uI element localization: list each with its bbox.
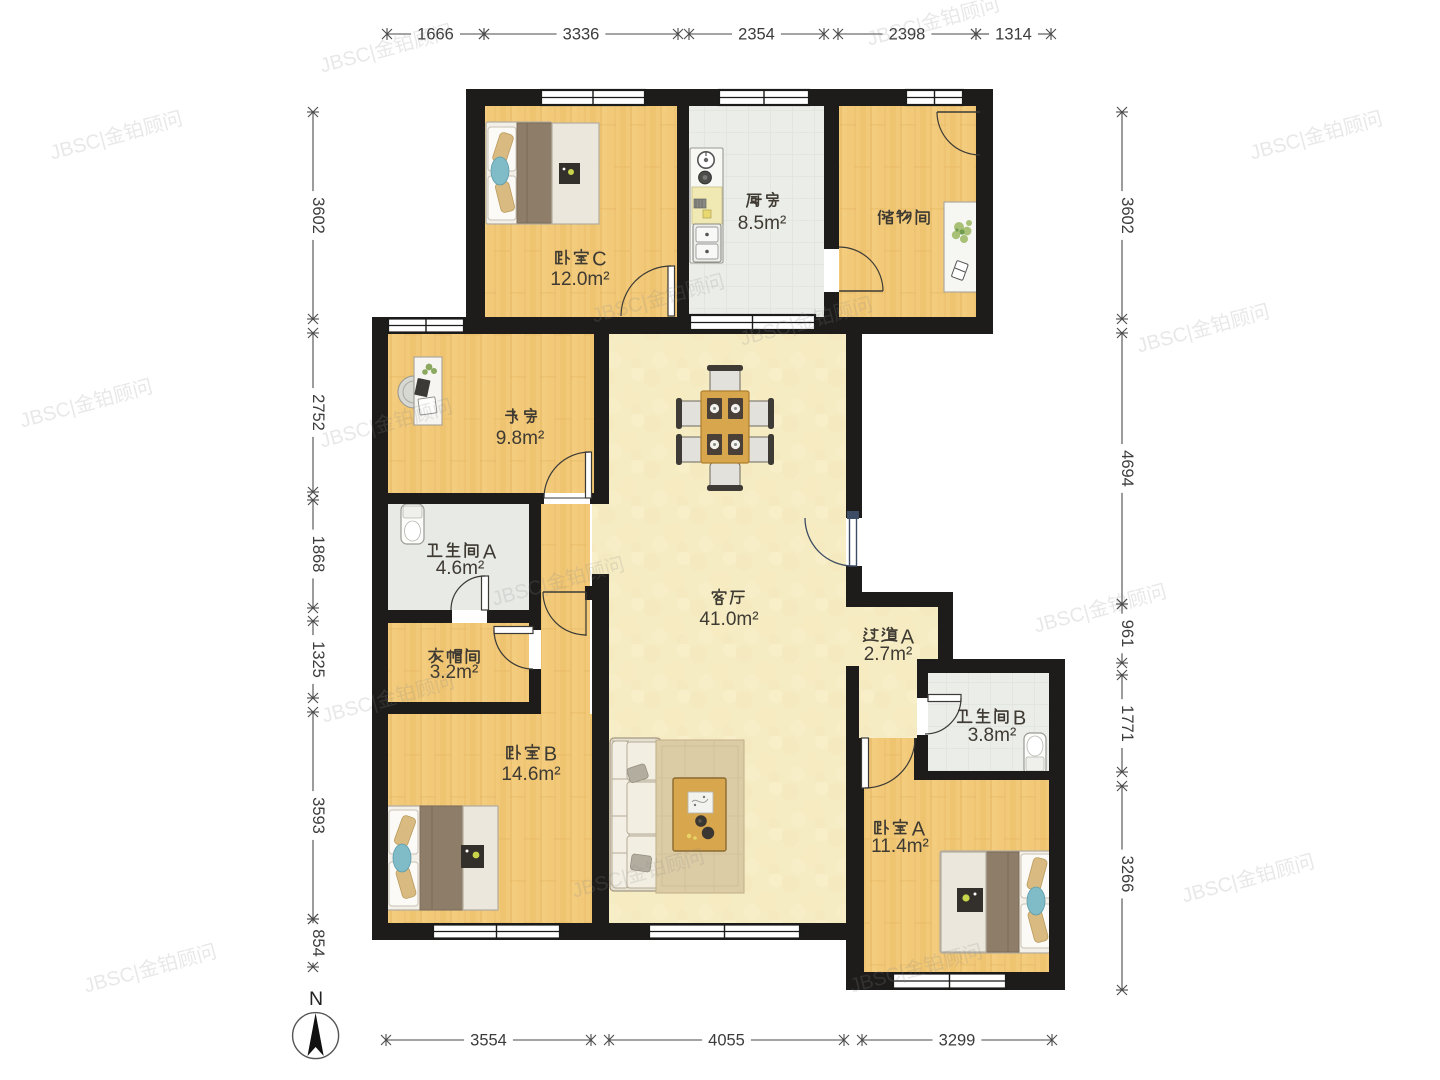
svg-text:854: 854: [309, 929, 327, 957]
svg-text:3266: 3266: [1118, 856, 1136, 893]
svg-text:961: 961: [1118, 620, 1136, 648]
svg-text:1771: 1771: [1118, 705, 1136, 742]
svg-text:41.0m²: 41.0m²: [699, 609, 758, 630]
svg-text:4055: 4055: [708, 1032, 745, 1050]
svg-text:3299: 3299: [939, 1032, 976, 1050]
svg-text:4694: 4694: [1118, 450, 1136, 487]
svg-text:9.8m²: 9.8m²: [496, 428, 545, 449]
svg-text:N: N: [309, 988, 323, 1010]
svg-text:B: B: [544, 743, 557, 765]
svg-text:3602: 3602: [309, 197, 327, 234]
svg-text:2752: 2752: [309, 394, 327, 431]
svg-text:2354: 2354: [738, 26, 775, 44]
svg-text:3554: 3554: [470, 1032, 507, 1050]
svg-text:1314: 1314: [995, 26, 1032, 44]
svg-text:12.0m²: 12.0m²: [550, 269, 609, 290]
svg-text:3602: 3602: [1118, 197, 1136, 234]
svg-text:A: A: [483, 541, 497, 563]
svg-text:3.8m²: 3.8m²: [968, 725, 1017, 746]
svg-text:3336: 3336: [563, 26, 600, 44]
svg-text:3593: 3593: [309, 797, 327, 834]
svg-text:1868: 1868: [309, 536, 327, 573]
svg-text:C: C: [592, 248, 606, 270]
svg-text:4.6m²: 4.6m²: [436, 558, 485, 579]
svg-text:2.7m²: 2.7m²: [864, 644, 913, 665]
svg-text:1325: 1325: [309, 641, 327, 678]
svg-text:11.4m²: 11.4m²: [871, 836, 929, 857]
svg-text:8.5m²: 8.5m²: [738, 213, 787, 234]
svg-text:14.6m²: 14.6m²: [501, 764, 560, 785]
